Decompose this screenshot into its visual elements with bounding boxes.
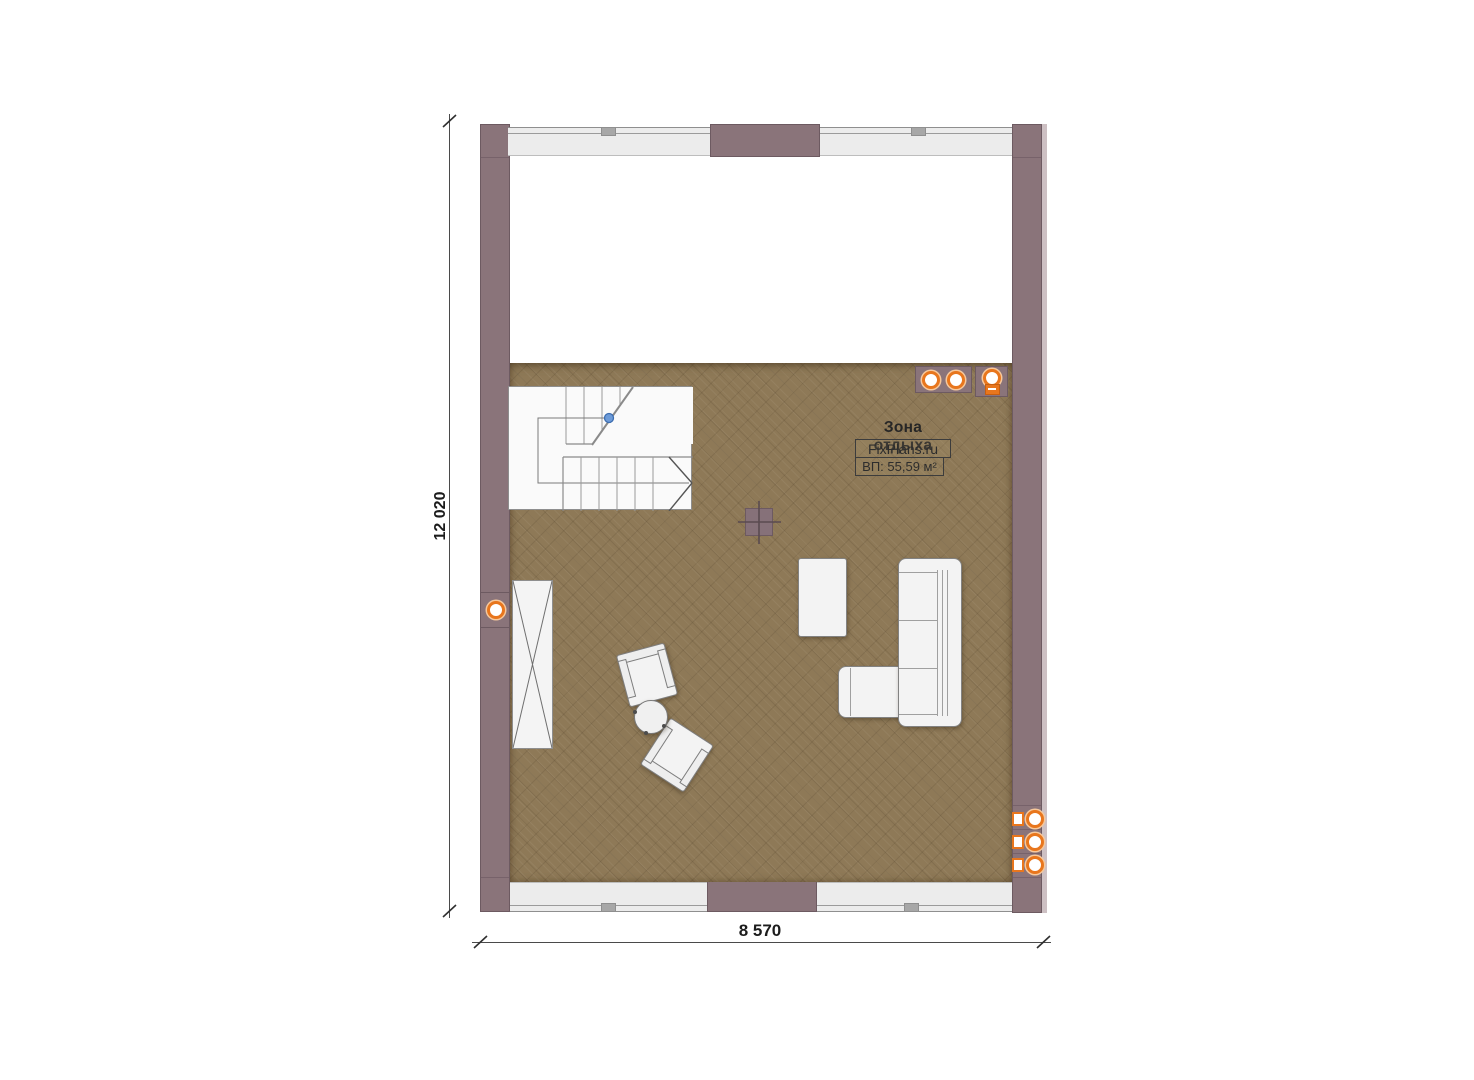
staircase-drawing xyxy=(509,387,693,511)
sconce-icon xyxy=(1012,833,1044,851)
wall-left xyxy=(480,124,510,912)
wardrobe-x-icon xyxy=(513,581,552,748)
sconce-icon xyxy=(1012,810,1044,828)
wall-right-outer-edge xyxy=(1042,124,1047,913)
window-mark-icon xyxy=(911,127,926,136)
window-mark-icon xyxy=(601,127,616,136)
socket-icon xyxy=(985,384,1000,395)
brand-label: FixPlans.ru xyxy=(868,441,938,457)
wall-lamp-box xyxy=(481,592,511,628)
spotlight-icon xyxy=(922,371,940,389)
spotlight-panel-b xyxy=(975,366,1008,397)
window-mark-icon xyxy=(601,903,616,912)
window-pier-bottom xyxy=(707,880,817,912)
spotlight-icon xyxy=(947,371,965,389)
wardrobe xyxy=(512,580,553,749)
chimney-flue xyxy=(745,508,773,536)
spotlight-panel-a xyxy=(915,366,972,393)
coffee-table xyxy=(798,558,847,637)
sofa-chaise xyxy=(838,666,902,718)
brand-badge: FixPlans.ru xyxy=(855,439,951,458)
stair-start-marker xyxy=(605,414,614,423)
dim-height-label: 12 020 xyxy=(426,476,456,556)
wall-right xyxy=(1012,124,1042,913)
area-label: ВП: 55,59 м² xyxy=(862,459,937,474)
window-pier-top xyxy=(710,124,820,157)
wall-lamp-icon xyxy=(487,601,505,619)
floor-plan: Зона отдыха FixPlans.ru ВП: 55,59 м² 12 … xyxy=(0,0,1474,1080)
staircase xyxy=(508,386,692,510)
area-badge: ВП: 55,59 м² xyxy=(855,457,944,476)
window-mark-icon xyxy=(904,903,919,912)
corner-sofa xyxy=(898,558,962,727)
round-side-table xyxy=(634,700,668,734)
dim-width-label: 8 570 xyxy=(700,921,820,941)
sconce-icon xyxy=(1012,856,1044,874)
